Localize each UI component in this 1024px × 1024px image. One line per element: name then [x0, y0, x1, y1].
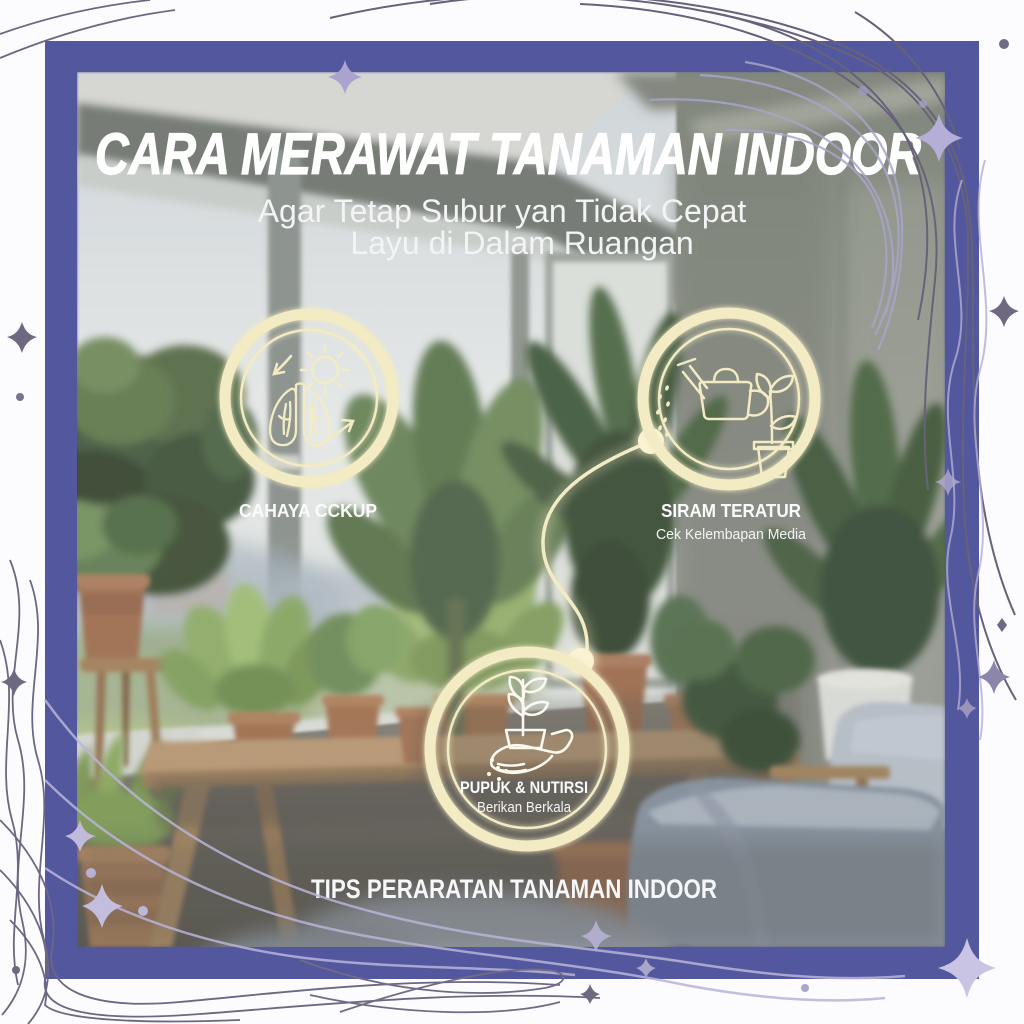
svg-text:Layu di Dalam Ruangan: Layu di Dalam Ruangan — [350, 225, 693, 261]
svg-text:CAHAYA CCKUP: CAHAYA CCKUP — [239, 501, 377, 521]
svg-text:PUPUK & NUTIRSI: PUPUK & NUTIRSI — [460, 778, 588, 797]
svg-text:Agar Tetap Subur yan Tidak Cep: Agar Tetap Subur yan Tidak Cepat — [258, 193, 747, 229]
svg-text:CARA MERAWAT TANAMAN INDOOR: CARA MERAWAT TANAMAN INDOOR — [95, 122, 921, 187]
svg-text:SIRAM TERATUR: SIRAM TERATUR — [661, 501, 801, 521]
svg-text:Berikan Berkala: Berikan Berkala — [477, 799, 572, 816]
svg-text:Cek Kelembapan Media: Cek Kelembapan Media — [656, 526, 807, 543]
svg-text:TIPS PERARATAN TANAMAN INDOOR: TIPS PERARATAN TANAMAN INDOOR — [311, 874, 717, 904]
